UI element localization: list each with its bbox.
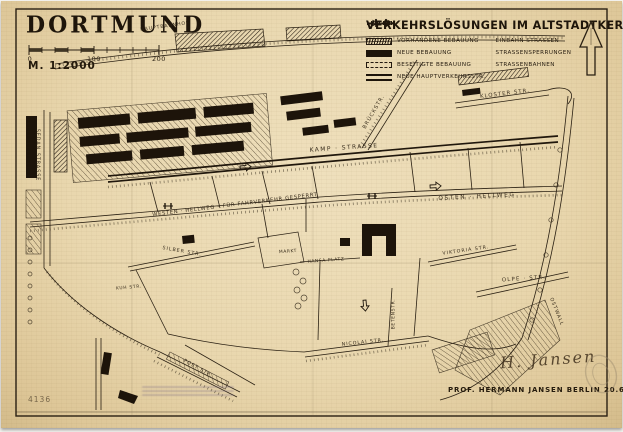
legend: VERKEHRSLÖSUNGEN IM ALTSTADTKERN VORHAND… [366,18,608,81]
legend-item: NEUE BEBAUUNG [366,49,485,57]
north-quarter-blocks-east [280,88,357,138]
legend-item: NEUE HAUPTVERKEHRSSTR. [366,73,485,81]
map-sheet: DORTMUND 0 100 200 M. 1:2000 VERKEHRSLÖS… [0,0,623,432]
faded-ink-stamp [142,384,234,400]
scale-ratio-label: M. 1:2000 [28,60,96,72]
legend-label: NEUE HAUPTVERKEHRSSTR. [397,74,485,80]
dashed-swatch-icon [366,62,392,68]
one-way-arrows [240,163,441,312]
ostwall-road [522,96,574,340]
legend-column-left: VORHANDENE BEBAUUNG NEUE BEBAUUNG BESEIT… [366,37,485,81]
scale-tick-200: 200 [152,55,166,63]
archive-number: 4136 [28,395,51,404]
legend-item: STRASSENSPERRUNGEN [495,49,571,57]
hatched-swatch-icon [366,38,392,45]
legend-item: STRASSENBAHNEN [495,61,571,69]
legend-label: VORHANDENE BEBAUUNG [397,38,479,44]
solid-swatch-icon [366,50,392,57]
legend-item: VORHANDENE BEBAUUNG [366,37,485,45]
legend-column-right: EINBAHN STRASSEN STRASSENSPERRUNGEN [495,37,571,81]
double-line-swatch-icon [366,74,392,81]
legend-label: NEUE BEBAUUNG [397,50,452,56]
hellweg-road [30,186,562,231]
title-block: DORTMUND [26,12,205,38]
embossed-seal-icon [583,352,619,396]
legend-label: STRASSENBAHNEN [495,62,554,68]
legend-item: EINBAHN STRASSEN [495,37,571,45]
market-quarter [182,224,396,309]
legend-label: STRASSENSPERRUNGEN [495,50,571,56]
legend-label: EINBAHN STRASSEN [495,38,559,44]
north-arrow-icon [578,20,604,78]
legend-label: BESEITIGTE BEBAUUNG [397,62,471,68]
legend-title: VERKEHRSLÖSUNGEN IM ALTSTADTKERN [366,18,601,32]
map-title: DORTMUND [26,11,205,38]
legend-item: BESEITIGTE BEBAUUNG [366,61,485,69]
tram-line-icon [366,18,396,28]
